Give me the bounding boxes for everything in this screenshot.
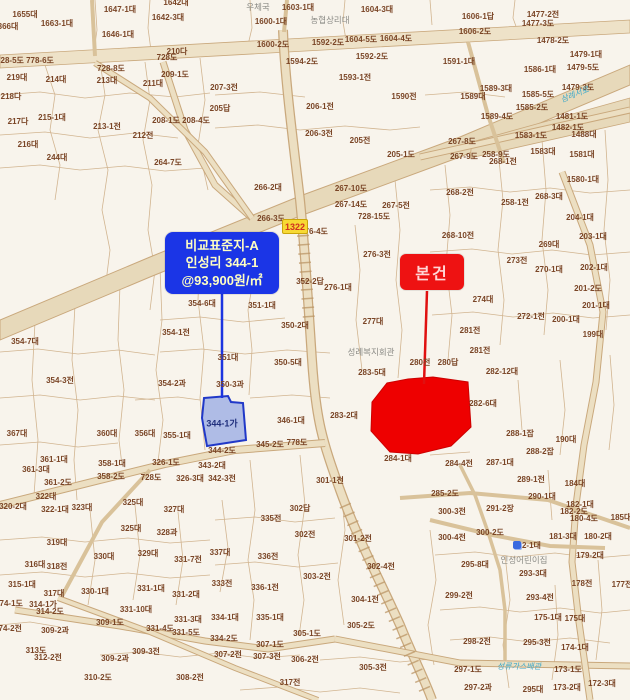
comparison-callout-price: @93,900원/㎡ <box>181 272 262 289</box>
comparison-parcel-callout: 비교표준지-A 인성리 344-1 @93,900원/㎡ <box>165 232 279 294</box>
kindergarten-icon <box>513 541 521 549</box>
comparison-callout-address: 인성리 344-1 <box>186 254 259 271</box>
subject-callout-label: 본건 <box>415 260 448 284</box>
comparison-parcel-highlight[interactable] <box>202 396 246 446</box>
cadastral-map[interactable]: 1655대1663-1대1647-1대1646-1대1642-3대1642대36… <box>0 0 630 700</box>
route-number-badge: 1322 <box>282 219 308 234</box>
comparison-callout-title: 비교표준지-A <box>185 237 259 254</box>
map-canvas <box>0 0 630 700</box>
subject-parcel-callout: 본건 <box>400 254 464 290</box>
